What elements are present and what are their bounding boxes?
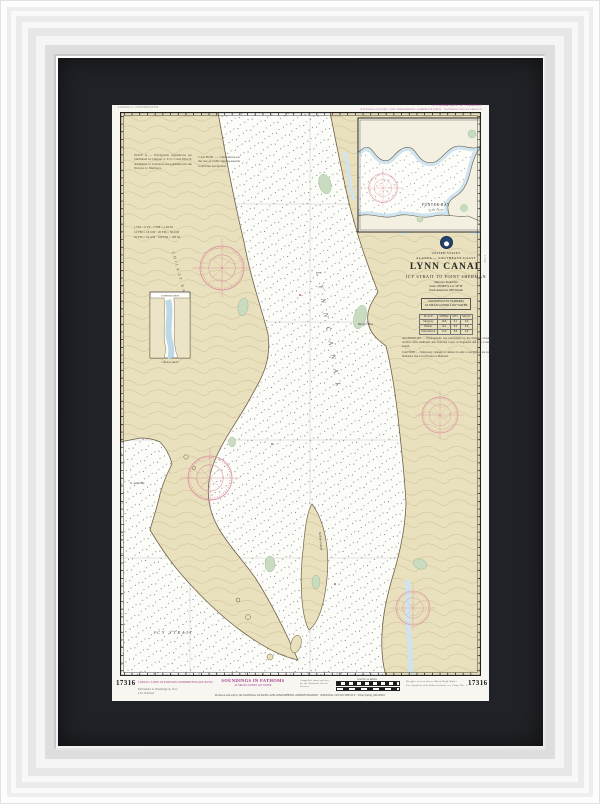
table-row: Eldred Rock15.9 8.60.0 [419, 329, 472, 334]
datum: North American 1983 Datum [402, 289, 490, 293]
inset-funter-bay: FUNTER BAY SCALE 1:20,000 [358, 118, 481, 232]
agency-line-2: NATIONAL OCEANIC AND ATMOSPHERIC ADMINIS… [262, 108, 482, 111]
caution-note: CAUTION — Temporary changes or defects i… [402, 351, 490, 359]
soundings-label: SOUNDINGS IN FATHOMS [208, 678, 298, 683]
title-region: ALASKA — SOUTHEAST COAST [402, 256, 490, 260]
land-note-b: CAUTION — Limitations on the use of radi… [198, 155, 240, 168]
chart-number-right: 17316 [468, 679, 488, 687]
inset-continuation: CONTINUATION CHILKAT INLET [150, 292, 190, 364]
title-country: UNITED STATES [402, 251, 490, 255]
production-note: Produced and sold by the NATIONAL OCEANI… [150, 694, 450, 697]
scale-bar [336, 681, 400, 691]
chart-title: LYNN CANAL [402, 262, 490, 272]
inset-continuation-title: CONTINUATION [161, 295, 179, 298]
label-icy-strait: ICY STRAIT [153, 630, 194, 635]
inset-funter-scale: SCALE 1:20,000 [428, 209, 444, 212]
chart-number-left: 17316 [116, 679, 136, 687]
chart-subtitle: ICY STRAIT TO POINT SHERMAN [402, 274, 490, 279]
soundings-datum: AT MEAN LOWER LOW WATER [425, 304, 468, 308]
right-tiny-note-1: Heights in feet above Mean High Water [406, 680, 457, 683]
label-berners-bay: Berners Bay [358, 322, 374, 326]
soundings-box: SOUNDINGS IN FATHOMS AT MEAN LOWER LOW W… [421, 298, 472, 310]
authorities-note: AUTHORITIES — Hydrography and topography… [402, 337, 490, 348]
right-tiny-note-2: For Symbols and Abbreviations see Chart … [406, 684, 467, 687]
compilation-note: Compiled from surveys by the National Oc… [300, 680, 332, 689]
conversion-table: 1 FM = 6 FT · 1 FM = 1.83 M 10 FM = 18.3… [134, 225, 216, 239]
chart-map: L Y N N C A N A L CHILKAT RANGE Berners … [120, 112, 481, 676]
label-st-james-bay: St. James Bay [130, 482, 145, 485]
top-left-margin-note: LORAN-C OVERPRINTED [118, 105, 159, 109]
soundings-sublabel: AT MEAN LOWER LOW WATER [208, 684, 298, 687]
tidal-table: PLACE MHHW MTL MLLW Skagway16.8 9.10.0 H… [419, 314, 473, 335]
framed-nautical-chart: LORAN-C OVERPRINTED U.S. DEPARTMENT OF C… [0, 0, 600, 804]
chart-title-block: UNITED STATES ALASKA — SOUTHEAST COAST L… [402, 236, 490, 359]
land-note-a: NOTE A — Navigation regulations are publ… [134, 153, 192, 170]
noaa-logo-icon [440, 236, 453, 249]
inset-funter-label: FUNTER BAY [422, 203, 450, 207]
inset-continuation-caption: CHILKAT INLET [161, 361, 179, 364]
chart-paper: LORAN-C OVERPRINTED U.S. DEPARTMENT OF C… [112, 105, 489, 701]
